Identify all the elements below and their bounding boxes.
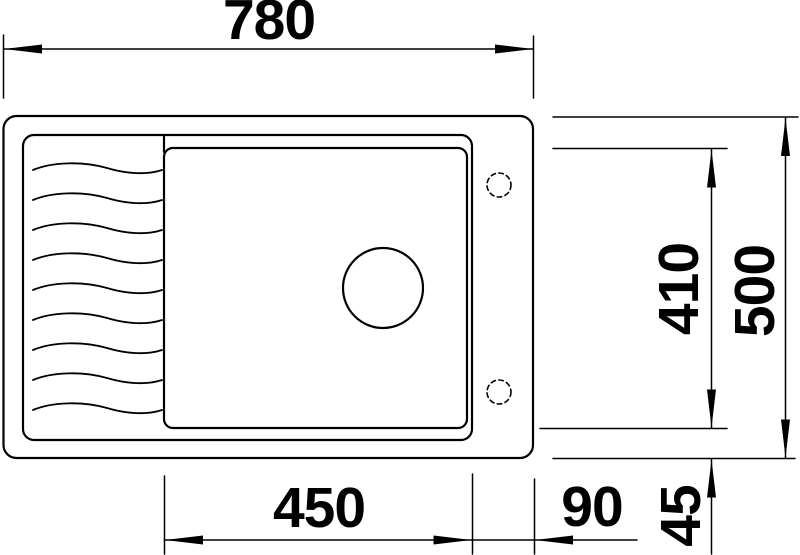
dim-90-label: 90: [542, 483, 642, 531]
dim-780-arrow-right: [495, 45, 533, 54]
drain-hole: [343, 248, 423, 328]
drainboard-ribs: [33, 163, 162, 413]
rib-line: [33, 223, 162, 233]
rib-line: [33, 163, 162, 173]
dim-780-label: 780: [199, 0, 339, 44]
dim-45-label: 45: [657, 466, 705, 555]
dim-450-label: 450: [249, 484, 389, 532]
technical-drawing-canvas: 780 500 410 450 90 45: [0, 0, 800, 555]
rib-line: [33, 283, 162, 293]
dim-410-label: 410: [655, 219, 703, 359]
rib-line: [33, 403, 162, 413]
sink-outer-outline: [4, 116, 534, 458]
tap-hole-top: [487, 173, 511, 197]
dim-780-arrow-left: [4, 45, 42, 54]
rib-line: [33, 373, 162, 383]
rib-line: [33, 253, 162, 263]
dim-500-label: 500: [731, 221, 779, 361]
sink-rim-outline: [23, 135, 472, 440]
dim-450-arrow-left: [165, 536, 203, 545]
dim-410-arrow-up: [707, 150, 716, 188]
rib-line: [33, 313, 162, 323]
rib-line: [33, 193, 162, 203]
dim-500-arrow-down: [781, 420, 790, 458]
rib-line: [33, 343, 162, 353]
tap-hole-bottom: [487, 380, 511, 404]
dim-500-arrow-up: [781, 118, 790, 156]
dim-410-arrow-down: [707, 390, 716, 428]
bowl-outline: [164, 148, 467, 428]
dim-450-arrow-right: [434, 536, 472, 545]
